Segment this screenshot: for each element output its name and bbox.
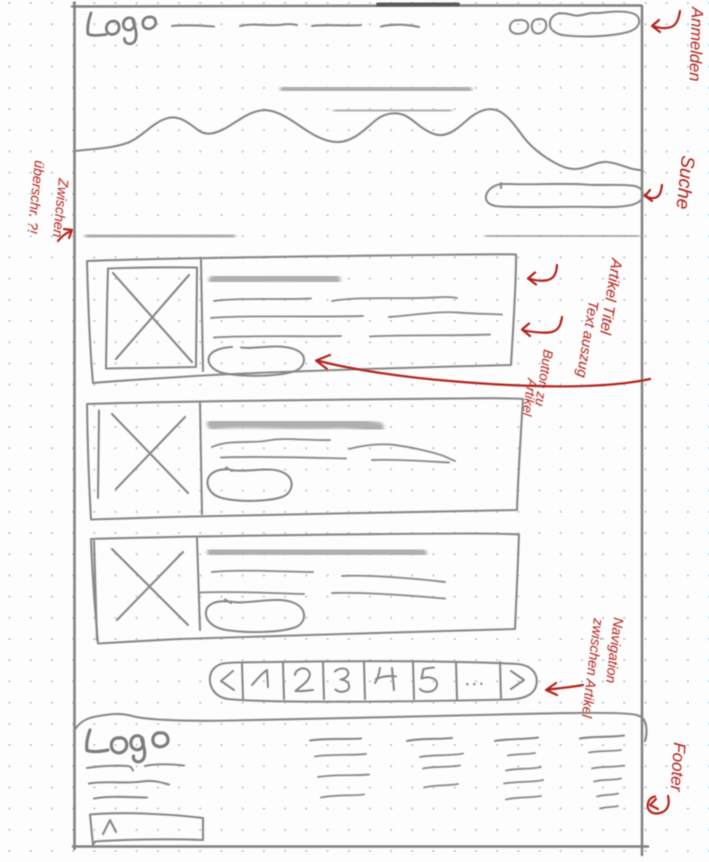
svg-text:Anmelden: Anmelden bbox=[685, 6, 706, 82]
svg-text:Footer: Footer bbox=[666, 742, 688, 794]
